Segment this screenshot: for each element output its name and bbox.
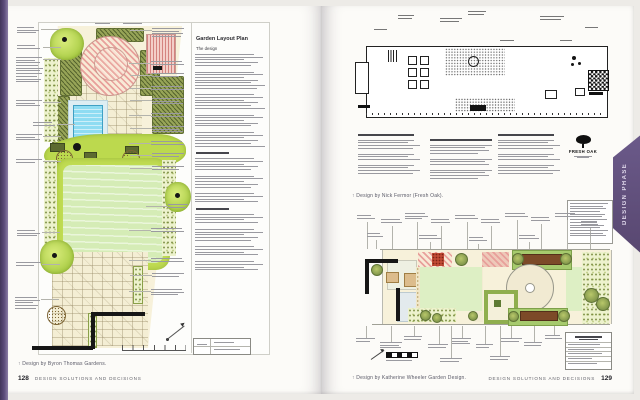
book-spine <box>0 0 8 400</box>
annotation-leader <box>129 115 151 116</box>
plan-notes <box>430 159 492 167</box>
annotation-leader <box>146 206 168 207</box>
annotation-label <box>481 219 501 224</box>
annotation-leader <box>43 102 61 103</box>
annotation-label <box>405 213 429 221</box>
tree-canopy <box>596 297 610 311</box>
tree-canopy <box>468 311 478 321</box>
annotation-label <box>431 219 451 224</box>
annotation-label <box>419 235 441 240</box>
title-block <box>565 332 612 370</box>
logo-text: FRESH OAK <box>566 149 600 154</box>
plan-notes <box>358 165 420 176</box>
plan-notes <box>358 140 420 151</box>
cad-planter <box>408 56 417 65</box>
annotation-label <box>16 262 42 267</box>
body-paragraph <box>195 158 265 171</box>
annotation-leader <box>441 226 442 249</box>
house-wall <box>396 288 400 321</box>
annotation-label <box>151 258 186 263</box>
sheet-divider <box>191 22 192 353</box>
cad-dot <box>578 62 581 65</box>
tree-canopy <box>371 264 383 276</box>
body-paragraph <box>195 214 265 225</box>
tree-trunk-marker <box>62 37 67 42</box>
annotation-label <box>151 113 186 118</box>
annotation-leader <box>430 242 431 249</box>
annotation-label <box>500 40 514 43</box>
annotation-label <box>357 215 377 220</box>
lawn <box>420 267 482 311</box>
plan-notes <box>358 134 420 137</box>
annotation-label <box>151 86 186 91</box>
book-spread-photo: Garden Layout Plan The design ↑ Design b… <box>0 0 640 400</box>
body-paragraph <box>195 54 265 67</box>
oak-tree-icon <box>576 135 591 144</box>
cad-dot <box>571 63 574 66</box>
cad-plan-annex <box>355 62 369 94</box>
plan-notes <box>358 154 420 162</box>
annotation-leader <box>451 326 452 358</box>
annotation-leader <box>491 226 492 249</box>
cad-dot <box>572 56 576 60</box>
annotation-label <box>440 18 462 23</box>
lawn <box>63 165 163 263</box>
cad-planter <box>408 68 417 77</box>
body-paragraph <box>195 72 265 91</box>
page-number-left: 128 <box>18 375 29 382</box>
annotation-label <box>151 228 186 233</box>
annotation-label <box>95 23 113 26</box>
annotation-leader <box>417 222 418 249</box>
tree-canopy <box>455 253 468 266</box>
annotation-leader <box>41 29 59 30</box>
tree-canopy <box>47 306 66 325</box>
feature-center <box>525 283 535 293</box>
annotation-label <box>380 342 402 350</box>
body-paragraph <box>195 261 265 272</box>
annotation-leader <box>130 155 152 156</box>
annotation-label <box>152 73 186 78</box>
body-paragraph <box>195 94 265 110</box>
annotation-label <box>490 356 510 361</box>
tree-canopy <box>420 310 431 321</box>
annotation-label <box>560 40 572 43</box>
annotation-label <box>531 217 551 222</box>
bench <box>153 66 162 70</box>
annotation-label <box>152 126 186 134</box>
annotation-leader <box>567 220 568 249</box>
annotation-leader <box>43 47 61 48</box>
flower-border <box>482 252 509 267</box>
body-paragraph <box>195 176 265 189</box>
left-footer: 128 DESIGN SOLUTIONS AND DECISIONS <box>18 375 142 382</box>
annotation-leader <box>129 88 151 89</box>
annotation-leader <box>129 230 151 231</box>
annotation-leader <box>57 124 75 125</box>
right-footer: DESIGN SOLUTIONS AND DECISIONS 129 <box>488 375 612 382</box>
house-wall <box>91 312 95 349</box>
cad-bar <box>358 105 370 108</box>
annotation-label <box>398 15 416 20</box>
tree-canopy <box>508 311 519 322</box>
annotation-label <box>469 237 487 242</box>
annotation-leader <box>129 291 151 292</box>
annotation-leader <box>529 242 530 249</box>
annotation-label <box>367 233 385 238</box>
house-wall <box>365 259 398 263</box>
border-planting <box>44 58 58 142</box>
annotation-label <box>33 122 57 127</box>
fresh-oak-logo: FRESH OAK <box>566 135 600 158</box>
north-arrow-icon <box>164 320 190 344</box>
tree-canopy <box>560 253 572 265</box>
tree-canopy <box>432 313 442 323</box>
annotation-label <box>452 338 472 346</box>
raised-bed <box>386 272 399 283</box>
annotation-label <box>356 338 376 343</box>
cad-solid <box>470 105 486 111</box>
annotation-leader <box>414 326 415 336</box>
body-paragraph <box>195 229 265 242</box>
annotation-leader <box>130 100 152 101</box>
plan-subhead: The design <box>196 46 217 51</box>
annotation-leader <box>42 264 60 265</box>
house-wall <box>365 259 369 294</box>
annotation-label <box>152 28 186 39</box>
house-wall <box>95 312 145 316</box>
notes-box-text <box>570 203 608 238</box>
annotation-label <box>468 11 488 16</box>
annotation-label <box>151 61 186 66</box>
plan-notes <box>498 154 560 162</box>
flower-border <box>432 253 444 266</box>
annotation-label <box>455 215 479 220</box>
woodland-planting <box>582 252 609 324</box>
annotation-leader <box>500 326 501 356</box>
annotation-label <box>505 213 529 218</box>
annotation-label <box>168 204 190 209</box>
annotation-label <box>404 336 424 341</box>
annotation-label <box>16 100 43 108</box>
plan-notes <box>430 139 492 142</box>
cad-planter <box>420 68 429 77</box>
cad-circle <box>468 56 479 67</box>
text-subhead <box>196 208 230 211</box>
annotation-leader <box>130 30 152 31</box>
annotation-label <box>476 344 494 349</box>
house-wall <box>32 346 93 350</box>
annotation-leader <box>554 326 555 335</box>
annotation-leader <box>42 232 60 233</box>
body-paragraph <box>195 246 265 257</box>
page-number-right: 129 <box>601 375 612 382</box>
annotation-label <box>17 27 41 35</box>
annotation-label <box>151 289 186 297</box>
annotation-leader <box>534 326 535 342</box>
circular-feature-inner <box>94 47 128 81</box>
annotation-label <box>440 358 462 363</box>
annotation-label <box>585 27 600 30</box>
cad-planter <box>420 56 429 65</box>
annotation-leader <box>366 326 367 338</box>
scale-bar <box>122 345 186 351</box>
plan-notes <box>498 140 560 151</box>
water-feature-center <box>494 300 501 307</box>
annotation-label <box>152 153 186 158</box>
annotation-leader <box>511 326 512 338</box>
annotation-leader <box>478 244 479 249</box>
tree-marker <box>73 143 81 151</box>
text-subhead <box>196 152 230 155</box>
design-phase-tab-label: DESIGN PHASE <box>622 133 628 255</box>
annotation-leader <box>485 326 486 344</box>
annotation-label <box>540 16 564 21</box>
plan-notes <box>430 170 492 181</box>
plan-notes <box>430 145 492 156</box>
annotation-leader <box>391 326 392 342</box>
qr-code-patch <box>588 70 609 91</box>
annotation-label <box>519 235 539 240</box>
annotation-leader <box>541 224 542 249</box>
plan-notes <box>498 165 560 176</box>
cad-bar <box>589 92 603 95</box>
chapter-title-right: DESIGN SOLUTIONS AND DECISIONS <box>488 376 595 381</box>
title-block <box>193 338 251 355</box>
cad-planter <box>408 80 417 89</box>
annotation-leader <box>43 59 61 60</box>
annotation-label <box>17 45 43 50</box>
left-plan-caption: ↑ Design by Byron Thomas Gardens. <box>18 361 107 367</box>
annotation-label <box>123 23 147 26</box>
annotation-leader <box>130 128 152 129</box>
annotation-leader <box>43 161 61 162</box>
cad-planter <box>420 80 429 89</box>
annotation-label <box>16 57 43 84</box>
annotation-leader <box>129 260 151 261</box>
annotation-leader <box>439 326 440 344</box>
tree-canopy <box>512 253 524 265</box>
boundary-line <box>372 324 610 325</box>
annotation-label <box>152 166 186 171</box>
tree-trunk-marker <box>175 193 180 198</box>
annotation-label <box>545 335 563 340</box>
annotation-label <box>17 230 42 238</box>
plan-notes <box>498 134 560 137</box>
cad-hatch <box>388 50 398 62</box>
hedge <box>133 266 143 304</box>
annotation-leader <box>467 222 468 249</box>
annotation-label <box>428 344 450 349</box>
annotation-leader <box>376 240 377 249</box>
annotation-label <box>15 297 41 310</box>
cad-rect <box>545 90 557 99</box>
annotation-leader <box>41 299 59 300</box>
annotation-leader <box>130 168 152 169</box>
cad-dashed-edge <box>366 113 606 115</box>
top-plan-caption: ↑ Design by Nick Fermor (Fresh Oak). <box>352 193 443 199</box>
scale-bar <box>386 352 418 358</box>
tree-trunk-marker <box>52 253 57 258</box>
annotation-leader <box>129 63 151 64</box>
annotation-label <box>152 273 186 278</box>
annotation-label <box>374 29 388 32</box>
annotation-label <box>152 98 186 106</box>
bottom-plan-caption: ↑ Design by Katherine Wheeler Garden Des… <box>352 375 466 381</box>
plan-title: Garden Layout Plan <box>196 36 248 42</box>
tree-canopy <box>558 310 570 322</box>
body-paragraph <box>195 115 265 128</box>
annotation-leader <box>130 75 152 76</box>
body-paragraph <box>195 132 265 148</box>
chapter-title-left: DESIGN SOLUTIONS AND DECISIONS <box>35 376 142 381</box>
annotation-label <box>500 338 522 343</box>
annotation-leader <box>129 143 151 144</box>
annotation-label <box>381 219 403 224</box>
annotation-leader <box>462 326 463 338</box>
cad-rect <box>575 88 585 96</box>
annotation-label <box>16 159 43 164</box>
annotation-label <box>151 141 186 146</box>
annotation-leader <box>130 275 152 276</box>
annotation-label <box>524 342 544 347</box>
annotation-leader <box>392 226 393 249</box>
body-paragraph <box>195 193 265 204</box>
annotation-label <box>16 134 43 142</box>
annotation-leader <box>517 220 518 249</box>
annotation-leader <box>43 136 61 137</box>
bench <box>520 311 558 321</box>
